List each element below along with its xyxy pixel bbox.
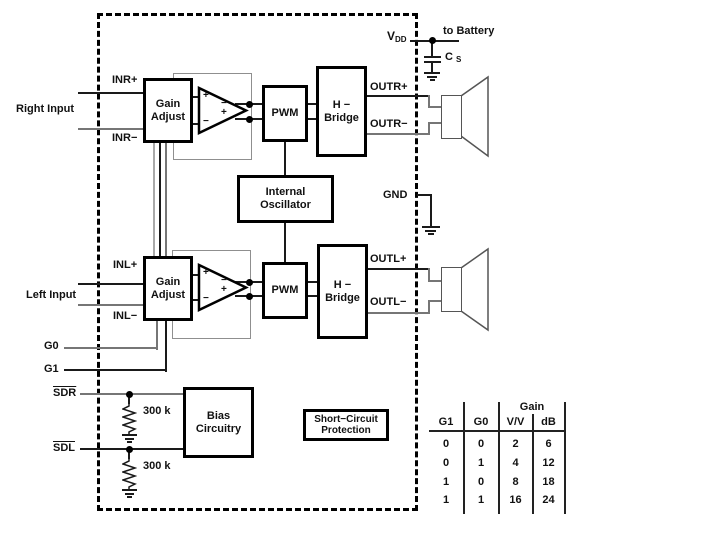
opamp-minus-mark: − (203, 117, 209, 127)
wire-g1-riser (165, 321, 167, 372)
outl-plus-label: OUTL+ (370, 254, 406, 265)
short-circuit-protection-label: Short−Circuit Protection (314, 414, 378, 436)
wire-inr-minus (78, 128, 143, 130)
speaker-left-cone (460, 247, 490, 332)
g1-label: G1 (44, 364, 59, 375)
resistor-sdr-value: 300 k (143, 406, 171, 417)
h-bridge-right-block: H − Bridge (316, 66, 367, 157)
sdl-label: SDL (53, 443, 75, 454)
gnd-label: GND (383, 190, 407, 201)
ground-symbol (430, 79, 435, 81)
ground-symbol (127, 496, 132, 498)
bias-circuitry-label: Bias Circuitry (196, 410, 241, 436)
table-cell: 12 (533, 457, 564, 469)
table-cell: 4 (499, 457, 532, 469)
wire-gain-bus (153, 143, 155, 256)
sdr-label: SDR (53, 388, 76, 399)
wire-inl-minus (78, 304, 143, 306)
opamp-minus-mark: − (203, 294, 209, 304)
table-cell: 16 (499, 494, 532, 506)
junction-dot (246, 116, 253, 123)
ground-symbol (424, 72, 440, 74)
table-cell: 1 (429, 494, 463, 506)
ground-symbol (122, 434, 137, 436)
ground-symbol (127, 441, 132, 443)
speaker-right-cone (460, 74, 490, 159)
table-cell: 24 (533, 494, 564, 506)
ground-symbol (427, 76, 437, 78)
gain-table-header-db: dB (533, 416, 564, 428)
pwm-left-block: PWM (262, 262, 308, 319)
resistor-sdr (122, 403, 137, 434)
table-cell: 1 (429, 476, 463, 488)
wire-pwm-hbridge (308, 281, 317, 283)
bias-circuitry-block: Bias Circuitry (183, 387, 254, 458)
gain-table-span-header: Gain (499, 401, 565, 413)
speaker-right (441, 95, 462, 139)
vdd-sub: DD (395, 35, 407, 44)
junction-dot (246, 279, 253, 286)
vdd-label: VDD (387, 31, 407, 45)
functional-block-diagram: Gain Adjust PWM H − Bridge Internal Osci… (0, 0, 720, 533)
cap-sub: S (456, 55, 461, 64)
wire-gain-bus (159, 143, 161, 256)
table-cell: 1 (464, 494, 498, 506)
wire-inl-plus (78, 283, 143, 285)
gain-table-header-vv: V/V (499, 416, 532, 428)
table-cell: 18 (533, 476, 564, 488)
cap-main: C (445, 51, 453, 63)
junction-dot (246, 293, 253, 300)
wire-g0 (64, 347, 158, 349)
pwm-right-block: PWM (262, 85, 308, 142)
ground-symbol (125, 493, 134, 495)
junction-dot (126, 446, 133, 453)
vdd-main: V (387, 29, 395, 43)
wire-osc-top (284, 142, 286, 175)
wire-speaker-step (428, 280, 442, 282)
wire-pwm-hbridge (308, 295, 317, 297)
gain-table-header-g1: G1 (429, 416, 463, 428)
gain-adjust-right-label: Gain Adjust (151, 98, 185, 124)
wire-gain-bus (165, 143, 167, 256)
table-cell: 2 (499, 438, 532, 450)
wire-speaker-step (428, 300, 442, 302)
wire-pwm-hbridge (308, 103, 316, 105)
h-bridge-right-label: H − Bridge (324, 99, 359, 125)
wire-speaker-step (428, 106, 442, 108)
table-cell: 0 (429, 438, 463, 450)
table-rule (564, 402, 566, 514)
opamp-plus-mark: + (203, 268, 209, 278)
to-battery-label: to Battery (443, 26, 494, 37)
opamp-plus-mark: + (221, 285, 227, 295)
gain-adjust-right-block: Gain Adjust (143, 78, 193, 143)
h-bridge-left-label: H − Bridge (325, 279, 360, 305)
wire-g0-riser (156, 321, 158, 350)
h-bridge-left-block: H − Bridge (317, 244, 368, 339)
junction-dot (246, 101, 253, 108)
right-input-label: Right Input (16, 104, 74, 115)
table-cell: 0 (464, 476, 498, 488)
gain-adjust-left-label: Gain Adjust (151, 276, 185, 302)
wire-outr-plus (366, 95, 429, 97)
resistor-sdl-value: 300 k (143, 461, 171, 472)
table-cell: 0 (429, 457, 463, 469)
wire-inr-plus (78, 92, 143, 94)
pwm-left-label: PWM (272, 284, 299, 297)
table-cell: 1 (464, 457, 498, 469)
table-cell: 8 (499, 476, 532, 488)
ground-symbol (422, 226, 440, 228)
bypass-cap-label: C S (445, 52, 461, 65)
wire-outl-minus (368, 312, 429, 314)
internal-oscillator-block: Internal Oscillator (237, 175, 334, 223)
resistor-sdl (122, 458, 137, 489)
wire-pwm-hbridge (308, 118, 316, 120)
wire-outl-plus (368, 268, 429, 270)
short-circuit-protection-block: Short−Circuit Protection (303, 409, 389, 441)
ground-symbol (425, 230, 436, 232)
g0-label: G0 (44, 341, 59, 352)
gain-adjust-left-block: Gain Adjust (143, 256, 193, 321)
capacitor-plate (424, 56, 441, 58)
junction-dot (429, 37, 436, 44)
wire-speaker-step (428, 122, 442, 124)
table-cell: 0 (464, 438, 498, 450)
table-cell: 6 (533, 438, 564, 450)
outl-minus-label: OUTL− (370, 297, 406, 308)
internal-oscillator-label: Internal Oscillator (260, 186, 311, 212)
outr-minus-label: OUTR− (370, 119, 408, 130)
opamp-plus-mark: + (221, 108, 227, 118)
pwm-right-label: PWM (272, 107, 299, 120)
gain-table-header-g0: G0 (464, 416, 498, 428)
inl-minus-label: INL− (113, 311, 137, 322)
wire-gnd (430, 194, 432, 226)
left-input-label: Left Input (26, 290, 76, 301)
wire-g1 (64, 369, 167, 371)
wire-cap-ground (431, 63, 433, 72)
ground-symbol (125, 438, 134, 440)
inl-plus-label: INL+ (113, 260, 137, 271)
wire-osc-bottom (284, 223, 286, 262)
ground-symbol (428, 233, 434, 235)
outr-plus-label: OUTR+ (370, 82, 408, 93)
inr-minus-label: INR− (112, 133, 137, 144)
speaker-left (441, 267, 462, 312)
junction-dot (126, 391, 133, 398)
opamp-plus-mark: + (203, 91, 209, 101)
wire-outr-minus (366, 133, 429, 135)
wire-speaker-step (428, 300, 430, 314)
inr-plus-label: INR+ (112, 75, 137, 86)
ground-symbol (122, 489, 137, 491)
